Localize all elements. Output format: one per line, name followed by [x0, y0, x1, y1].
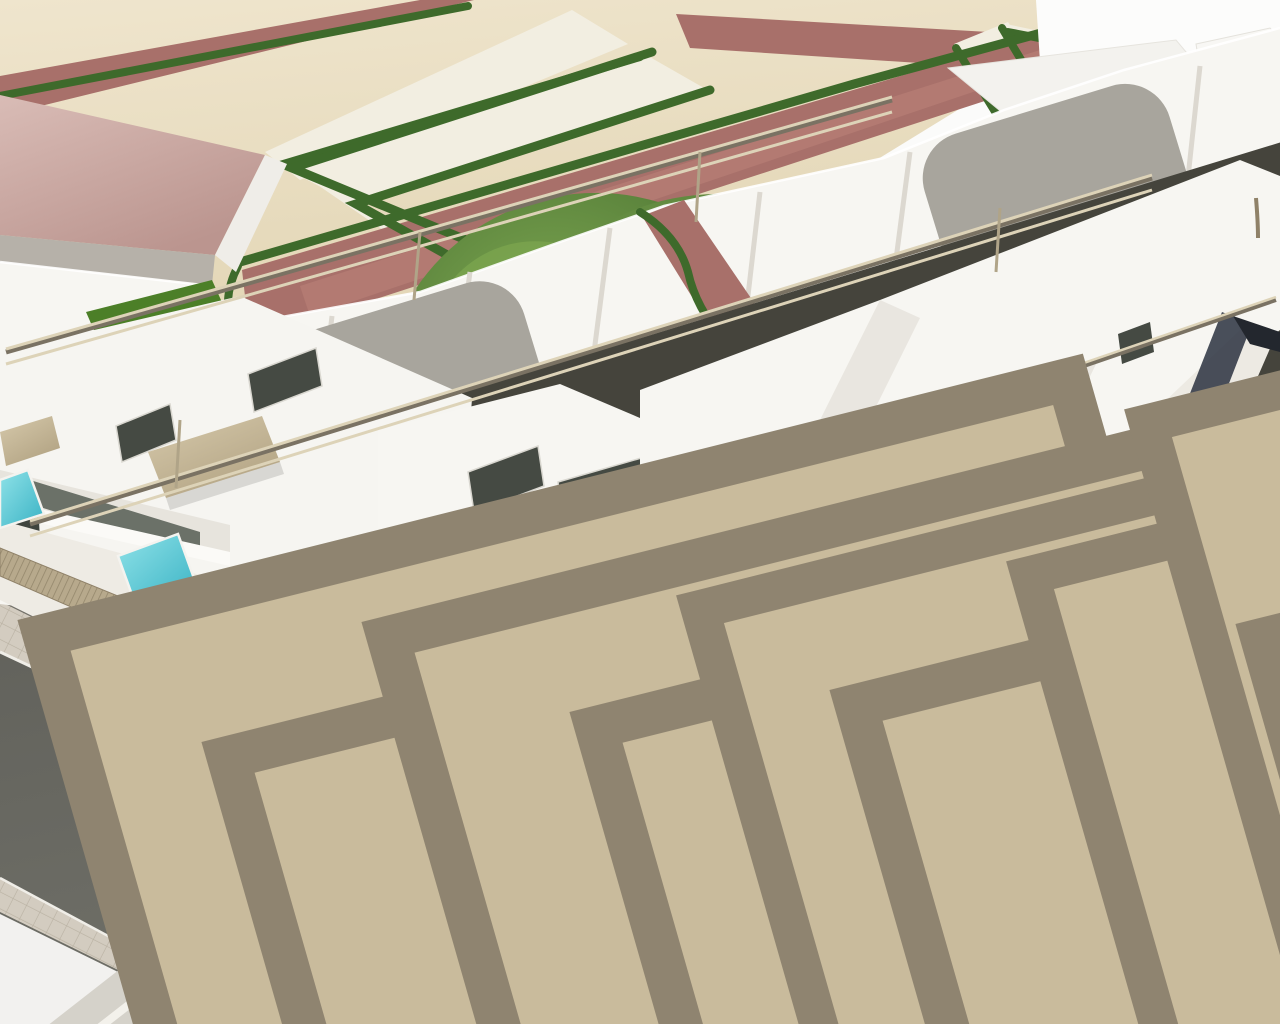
render-canvas [0, 0, 1280, 1024]
palm-trunk-small [1256, 198, 1258, 238]
architectural-render [0, 0, 1280, 1024]
